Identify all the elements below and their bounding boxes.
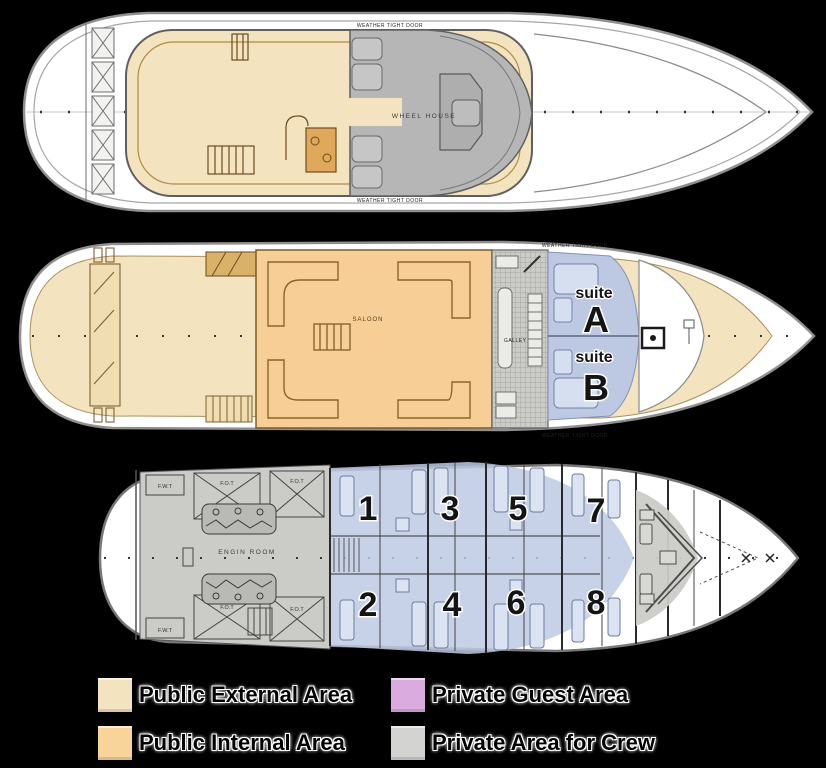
main-door-label-top: WEATHER TIGHT DOOR — [542, 243, 608, 249]
private-guest-swatch — [391, 678, 425, 712]
cabin-2-number: 2 — [359, 586, 378, 624]
aft-stair-structure — [90, 248, 120, 422]
public-external-label: Public External Area — [139, 682, 352, 708]
top-deck-plan: WHEEL HOUSE WEATHER TIGHT DOOR WEATHER T… — [0, 0, 826, 226]
aft-companionway — [206, 396, 252, 422]
galley-label: GALLEY — [504, 338, 527, 344]
private-crew-swatch — [391, 726, 425, 760]
top-deck-drawing: WHEEL HOUSE WEATHER TIGHT DOOR WEATHER T… — [0, 0, 826, 226]
cabin-7-number: 7 — [587, 492, 606, 530]
private-guest-label: Private Guest Area — [432, 682, 628, 708]
legend-row-1: Public External Area Private Guest Area — [98, 676, 758, 714]
private-crew-label: Private Area for Crew — [432, 730, 655, 756]
main-door-label-bottom: WEATHER TIGHT DOOR — [542, 433, 608, 439]
main-deck-drawing: SALOON GALLEY suite A suite B — [0, 232, 826, 444]
lower-deck-plan: F.W.T F.O.T F.O.T F.W.T F.O.T F.O.T ENGI… — [0, 448, 826, 663]
public-external-swatch — [98, 678, 132, 712]
legend-item-private-crew: Private Area for Crew — [391, 726, 655, 760]
legend: Public External Area Private Guest Area … — [98, 676, 758, 768]
suite-a-letter: A — [583, 299, 609, 340]
public-internal-swatch — [98, 726, 132, 760]
tank-label-fot-top-1: F.O.T — [220, 481, 234, 487]
cabin-5-number: 5 — [509, 490, 528, 528]
legend-row-2: Public Internal Area Private Area for Cr… — [98, 724, 758, 762]
tank-label-fwt-top: F.W.T — [158, 484, 173, 490]
saloon-area — [256, 250, 492, 428]
legend-item-public-internal: Public Internal Area — [98, 726, 391, 760]
top-door-label-bottom: WEATHER TIGHT DOOR — [357, 198, 423, 204]
aft-module — [206, 252, 256, 276]
tank-label-fwt-bottom: F.W.T — [158, 628, 173, 634]
engine-room-area — [140, 465, 330, 649]
cabin-3-number: 3 — [441, 490, 460, 528]
main-deck-plan: SALOON GALLEY suite A suite B — [0, 232, 826, 444]
tank-label-fot-top-2: F.O.T — [290, 479, 304, 485]
cabin-6-number: 6 — [507, 584, 526, 622]
wheelhouse-corridor — [338, 98, 402, 126]
legend-item-private-guest: Private Guest Area — [391, 678, 628, 712]
suite-b-letter: B — [583, 367, 609, 408]
cabin-1-number: 1 — [359, 490, 378, 528]
suite-b-prefix: suite — [575, 349, 612, 366]
engine-room-label: ENGIN ROOM — [218, 549, 276, 556]
wheelhouse-label: WHEEL HOUSE — [392, 113, 456, 120]
public-internal-label: Public Internal Area — [139, 730, 345, 756]
lower-deck-drawing: F.W.T F.O.T F.O.T F.W.T F.O.T F.O.T ENGI… — [0, 448, 826, 663]
helm-table — [452, 100, 480, 126]
legend-item-public-external: Public External Area — [98, 678, 391, 712]
tank-label-fot-bottom-2: F.O.T — [290, 607, 304, 613]
yacht-deck-plans: WHEEL HOUSE WEATHER TIGHT DOOR WEATHER T… — [0, 0, 826, 768]
tank-label-fot-bottom-1: F.O.T — [220, 605, 234, 611]
saloon-label: SALOON — [352, 317, 383, 323]
flybridge-bar — [306, 128, 336, 172]
top-door-label-top: WEATHER TIGHT DOOR — [357, 23, 423, 29]
cabin-4-number: 4 — [443, 586, 462, 624]
cabin-8-number: 8 — [587, 584, 606, 622]
